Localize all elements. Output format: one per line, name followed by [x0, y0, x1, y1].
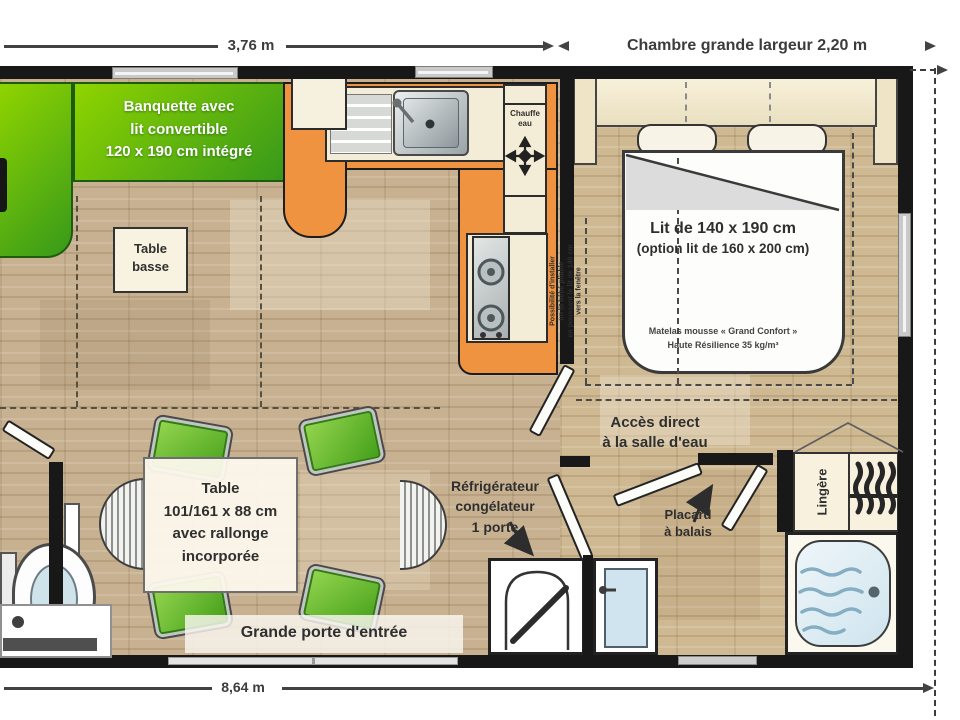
fridge-basin-wall — [583, 555, 593, 655]
cropped-object — [0, 158, 7, 212]
dining-table-label: Table 101/161 x 88 cm avec rallonge inco… — [143, 478, 298, 568]
headboard-shelf — [595, 77, 877, 127]
floor-light-patch — [40, 300, 210, 390]
arrow-right-icon — [923, 683, 934, 693]
corridor-wall-right — [698, 453, 773, 465]
shelf-divider — [769, 82, 771, 122]
towel-radiator — [848, 452, 899, 532]
banquette-label: Banquette avec lit convertible 120 x 190… — [78, 96, 280, 164]
rug-dashed-line — [260, 196, 262, 407]
fridge — [488, 558, 585, 655]
rug-dashed-line — [76, 196, 78, 407]
dim-line-top-left2 — [286, 45, 544, 48]
baby-bed-note: Possibilité d'installer un lit bébé plia… — [549, 185, 585, 397]
dim-line-bottom-right — [282, 687, 924, 690]
dim-line-top-left — [4, 45, 218, 48]
window-living — [112, 67, 238, 79]
floorplan-mobile-home: Banquette avec lit convertible 120 x 190… — [0, 0, 960, 720]
entry-door-label: Grande porte d'entrée — [185, 624, 463, 642]
arrow-right-icon — [925, 41, 936, 51]
gas-hob — [472, 236, 510, 340]
cropped-label-bar — [3, 638, 97, 651]
linen-cupboard-label: Lingère — [814, 469, 829, 516]
bedroom-dashed-line — [576, 399, 897, 401]
dim-extension-dashed — [934, 68, 936, 716]
broom-closet-label: Placard à balais — [648, 507, 728, 541]
arrow-left-icon — [558, 41, 569, 51]
linen-wall — [777, 450, 793, 532]
window-kitchen — [415, 66, 493, 78]
banquette-side — [0, 82, 73, 258]
headboard-panel-left — [573, 77, 597, 165]
mattress-label: Matelas mousse « Grand Confort » Haute R… — [638, 324, 808, 353]
linen-cupboard: Lingère — [793, 452, 850, 532]
entry-door-divider — [312, 657, 315, 665]
bed-slide-dashed-line — [852, 133, 854, 384]
corridor-wall-left — [560, 456, 590, 467]
window-bedroom-side — [898, 213, 911, 337]
sink-bowl-inner — [403, 98, 459, 148]
dim-line-bottom-left — [4, 687, 212, 690]
right-wall — [898, 66, 913, 668]
bed-dashed-line — [585, 384, 852, 386]
bed-slide-dashed-line — [585, 218, 587, 384]
coffee-table-label: Table basse — [113, 240, 188, 275]
arrow-right-icon — [937, 65, 948, 75]
dim-bedroom-width: Chambre grande largeur 2,20 m — [572, 37, 922, 55]
fridge-label: Réfrigérateur congélateur 1 porte — [432, 476, 558, 537]
bathroom-access-label: Accès direct à la salle d'eau — [580, 413, 730, 452]
washbasin-bowl — [604, 568, 648, 648]
dim-living-width: 3,76 m — [218, 37, 284, 54]
bed-label: Lit de 140 x 190 cm (option lit de 160 x… — [628, 218, 818, 258]
window-glass-line — [418, 71, 488, 74]
cutting-board — [291, 76, 347, 130]
bathroom-window-opening — [678, 656, 757, 665]
dim-extension-dashed-top — [910, 69, 936, 71]
dim-total-length: 8,64 m — [212, 679, 274, 695]
cropped-label-mark — [12, 616, 24, 628]
water-heater-label: Chauffe eau — [503, 109, 547, 129]
shelf-divider — [685, 82, 687, 122]
shower-tray — [795, 540, 891, 647]
window-glass-line — [115, 72, 233, 75]
arrow-right-icon — [543, 41, 554, 51]
window-glass-line — [903, 216, 906, 332]
